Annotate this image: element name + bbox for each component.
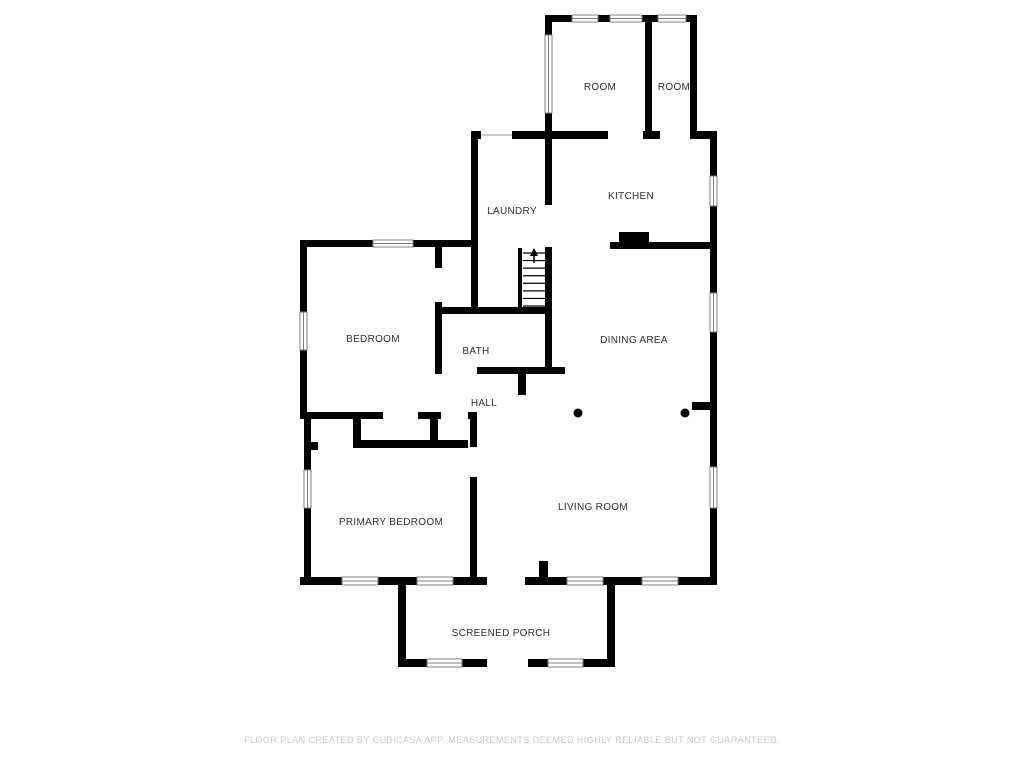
wall-segment	[710, 131, 717, 176]
wall-segment	[710, 508, 717, 584]
disclaimer-text: FLOOR PLAN CREATED BY CUBICASA APP. MEAS…	[0, 735, 1024, 745]
room-label-living-room-9: LIVING ROOM	[558, 502, 628, 513]
room-label-dining-area-6: DINING AREA	[600, 335, 668, 346]
wall-segment	[643, 131, 660, 139]
wall-segment	[539, 561, 548, 577]
wall-segment	[300, 350, 307, 414]
wall-segment	[304, 508, 311, 578]
room-label-primary-bedroom-8: PRIMARY BEDROOM	[339, 517, 443, 528]
wall-segment	[468, 412, 477, 419]
wall-segment	[598, 15, 610, 22]
room-label-bedroom-4: BEDROOM	[346, 334, 400, 345]
room-label-room-0: ROOM	[584, 82, 616, 93]
room-label-room-1: ROOM	[658, 82, 690, 93]
wall-segment	[435, 247, 442, 268]
room-label-kitchen-3: KITCHEN	[608, 191, 654, 202]
wall-segment	[603, 577, 642, 585]
column-dot	[574, 409, 583, 418]
stairs-up-arrow-icon	[530, 248, 538, 256]
wall-segment	[710, 332, 717, 467]
wall-segment	[453, 577, 487, 585]
wall-segment	[545, 113, 552, 133]
wall-segment	[435, 307, 552, 314]
wall-segment	[678, 577, 717, 585]
wall-segment	[398, 659, 427, 667]
wall-segment	[690, 22, 697, 131]
wall-segment	[518, 374, 526, 395]
room-label-bath-5: BATH	[462, 346, 489, 357]
wall-segment	[471, 131, 478, 314]
wall-segment	[300, 247, 307, 312]
column-dot	[681, 409, 690, 418]
wall-segment	[642, 15, 658, 22]
wall-segment	[477, 367, 565, 374]
wall-segment	[470, 419, 477, 447]
wall-segment	[300, 412, 383, 419]
wall-segment	[583, 659, 615, 667]
wall-segment	[545, 139, 552, 205]
floor-plan-page: ROOMROOMLAUNDRYKITCHENBEDROOMBATHDINING …	[0, 0, 1024, 768]
wall-segment	[300, 577, 342, 585]
wall-segment	[378, 577, 417, 585]
wall-segment	[607, 585, 615, 667]
wall-segment	[545, 247, 552, 314]
wall-segment	[692, 402, 710, 410]
wall-segment	[545, 314, 552, 374]
wall-segment	[353, 440, 468, 448]
wall-segment	[304, 412, 311, 470]
room-label-screened-porch-10: SCREENED PORCH	[452, 628, 551, 639]
wall-segment	[462, 659, 487, 667]
wall-segment	[528, 659, 548, 667]
wall-segment	[512, 131, 552, 139]
wall-segment	[545, 15, 572, 22]
wall-segment	[300, 240, 373, 247]
wall-segment	[398, 585, 406, 667]
kitchen-appliance	[619, 232, 649, 248]
room-label-hall-7: HALL	[471, 398, 497, 409]
wall-segment	[413, 240, 477, 247]
room-label-laundry-2: LAUNDRY	[487, 206, 537, 217]
wall-segment	[552, 131, 608, 139]
wall-segment	[686, 15, 697, 22]
floor-plan-drawing: ROOMROOMLAUNDRYKITCHENBEDROOMBATHDINING …	[0, 0, 1024, 768]
wall-segment	[518, 248, 522, 310]
wall-segment	[470, 477, 477, 578]
wall-segment	[645, 22, 652, 133]
wall-segment	[525, 577, 567, 585]
wall-segment	[710, 206, 717, 293]
